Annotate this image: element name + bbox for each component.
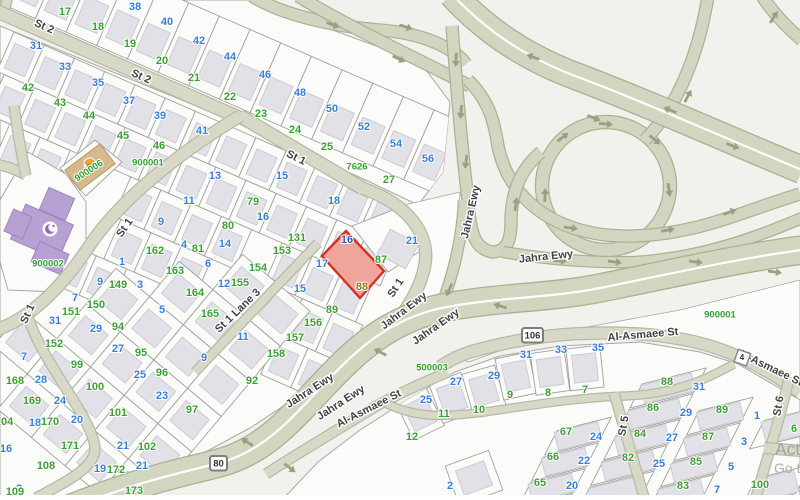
svg-text:38: 38 (129, 1, 141, 13)
svg-text:24: 24 (289, 124, 302, 136)
svg-text:168: 168 (6, 375, 24, 387)
svg-text:3: 3 (137, 279, 143, 291)
svg-text:6: 6 (205, 258, 211, 270)
svg-text:89: 89 (326, 304, 338, 316)
svg-text:46: 46 (259, 69, 271, 81)
svg-text:150: 150 (87, 299, 105, 311)
svg-text:11: 11 (237, 331, 249, 343)
svg-text:33: 33 (555, 344, 567, 356)
svg-text:7: 7 (72, 292, 78, 304)
svg-text:11: 11 (183, 195, 195, 207)
svg-text:Activate W: Activate W (775, 439, 800, 459)
svg-text:88: 88 (356, 281, 368, 293)
svg-text:5: 5 (728, 461, 734, 473)
svg-text:52: 52 (358, 121, 370, 133)
svg-text:100: 100 (86, 381, 104, 393)
svg-text:43: 43 (54, 97, 66, 109)
svg-text:108: 108 (37, 460, 55, 472)
svg-text:44: 44 (83, 110, 96, 122)
svg-text:7: 7 (582, 384, 588, 396)
svg-text:11: 11 (438, 408, 450, 420)
svg-text:22: 22 (224, 91, 236, 103)
svg-text:40: 40 (161, 16, 173, 28)
svg-text:31: 31 (520, 349, 532, 361)
svg-text:104: 104 (0, 416, 14, 428)
svg-text:1: 1 (754, 410, 760, 422)
svg-text:900002: 900002 (32, 259, 64, 270)
svg-text:153: 153 (273, 245, 291, 257)
svg-text:15: 15 (276, 170, 288, 182)
svg-text:41: 41 (196, 125, 208, 137)
svg-text:157: 157 (286, 332, 304, 344)
svg-text:88: 88 (661, 376, 673, 388)
svg-text:101: 101 (109, 407, 127, 419)
svg-text:20: 20 (71, 414, 83, 426)
svg-text:9: 9 (507, 389, 513, 401)
svg-text:23: 23 (156, 390, 168, 402)
svg-text:80: 80 (222, 220, 234, 232)
svg-text:31: 31 (693, 381, 705, 393)
svg-text:18: 18 (29, 417, 41, 429)
svg-text:12: 12 (218, 278, 230, 290)
svg-text:39: 39 (154, 110, 166, 122)
svg-text:109: 109 (6, 486, 24, 495)
svg-text:21: 21 (136, 460, 148, 472)
svg-text:154: 154 (249, 262, 268, 274)
svg-text:16: 16 (0, 443, 12, 455)
svg-text:106: 106 (525, 331, 541, 342)
svg-text:8: 8 (545, 387, 551, 399)
svg-text:14: 14 (219, 238, 232, 250)
svg-text:156: 156 (304, 317, 322, 329)
svg-text:7: 7 (21, 351, 27, 363)
svg-text:15: 15 (294, 283, 306, 295)
svg-text:85: 85 (690, 456, 702, 468)
svg-text:4: 4 (181, 239, 188, 251)
svg-text:44: 44 (224, 51, 237, 63)
svg-text:17: 17 (316, 258, 328, 270)
svg-text:163: 163 (166, 265, 184, 277)
svg-text:25: 25 (420, 394, 432, 406)
svg-text:25: 25 (134, 369, 146, 381)
svg-text:170: 170 (41, 416, 59, 428)
svg-text:50: 50 (326, 103, 338, 115)
svg-text:66: 66 (547, 451, 559, 463)
svg-text:56: 56 (422, 153, 434, 165)
svg-text:54: 54 (390, 138, 403, 150)
svg-text:27: 27 (383, 174, 395, 186)
svg-text:37: 37 (123, 95, 135, 107)
svg-text:27: 27 (112, 343, 124, 355)
svg-text:900001: 900001 (132, 158, 164, 169)
svg-text:20: 20 (566, 480, 578, 492)
svg-text:6: 6 (791, 423, 797, 435)
svg-text:89: 89 (716, 404, 728, 416)
svg-text:21: 21 (117, 440, 129, 452)
svg-text:Go to Setti: Go to Setti (774, 460, 800, 476)
svg-text:27: 27 (666, 432, 678, 444)
svg-text:22: 22 (578, 455, 590, 467)
svg-text:158: 158 (267, 348, 285, 360)
svg-text:95: 95 (135, 347, 147, 359)
svg-text:87: 87 (375, 254, 387, 266)
svg-text:7: 7 (714, 484, 720, 495)
svg-text:33: 33 (59, 61, 71, 73)
svg-text:3: 3 (741, 436, 747, 448)
svg-text:149: 149 (109, 279, 127, 291)
svg-text:42: 42 (193, 35, 205, 47)
svg-text:80: 80 (213, 459, 224, 470)
svg-text:35: 35 (592, 342, 604, 354)
svg-text:28: 28 (35, 374, 47, 386)
svg-text:162: 162 (146, 245, 164, 257)
svg-text:86: 86 (647, 402, 659, 414)
svg-text:97: 97 (186, 404, 198, 416)
svg-text:31: 31 (49, 315, 61, 327)
svg-text:65: 65 (534, 477, 546, 489)
svg-text:21: 21 (188, 72, 200, 84)
svg-text:82: 82 (622, 452, 634, 464)
svg-text:165: 165 (201, 308, 219, 320)
svg-text:9: 9 (97, 276, 103, 288)
svg-text:31: 31 (30, 40, 42, 52)
svg-text:21: 21 (406, 235, 418, 247)
svg-text:42: 42 (22, 82, 34, 94)
svg-text:27: 27 (450, 376, 462, 388)
svg-text:46: 46 (153, 140, 165, 152)
svg-text:29: 29 (488, 370, 500, 382)
svg-text:16: 16 (257, 211, 269, 223)
svg-text:100: 100 (751, 479, 769, 491)
svg-text:96: 96 (156, 367, 168, 379)
svg-text:102: 102 (138, 441, 156, 453)
svg-text:19: 19 (124, 38, 136, 50)
svg-text:18: 18 (92, 21, 104, 33)
svg-text:900001: 900001 (704, 310, 736, 321)
svg-text:164: 164 (186, 287, 205, 299)
svg-text:2: 2 (447, 480, 453, 492)
svg-text:20: 20 (156, 55, 168, 67)
svg-text:17: 17 (59, 6, 71, 18)
svg-text:35: 35 (92, 77, 104, 89)
svg-text:152: 152 (45, 338, 63, 350)
svg-text:25: 25 (321, 141, 333, 153)
svg-text:84: 84 (634, 428, 647, 440)
svg-text:29: 29 (680, 407, 692, 419)
svg-text:500003: 500003 (416, 363, 448, 374)
svg-text:87: 87 (702, 431, 714, 443)
svg-text:48: 48 (294, 87, 306, 99)
svg-text:9: 9 (158, 216, 164, 228)
svg-text:172: 172 (107, 464, 125, 476)
svg-text:9: 9 (201, 352, 207, 364)
svg-text:92: 92 (246, 375, 258, 387)
svg-text:5: 5 (159, 304, 165, 316)
svg-text:79: 79 (247, 196, 259, 208)
svg-text:45: 45 (117, 130, 129, 142)
svg-text:7626: 7626 (346, 162, 367, 173)
svg-text:67: 67 (560, 426, 572, 438)
svg-text:151: 151 (62, 306, 80, 318)
svg-text:29: 29 (90, 323, 102, 335)
svg-text:99: 99 (71, 359, 83, 371)
svg-text:19: 19 (94, 463, 106, 475)
svg-text:12: 12 (406, 431, 418, 443)
svg-text:94: 94 (112, 321, 125, 333)
svg-text:1: 1 (119, 256, 125, 268)
svg-text:173: 173 (125, 485, 143, 495)
svg-text:24: 24 (54, 395, 67, 407)
svg-text:131: 131 (288, 232, 306, 244)
svg-text:24: 24 (590, 431, 603, 443)
svg-text:155: 155 (231, 277, 249, 289)
svg-text:4: 4 (740, 353, 745, 362)
svg-text:83: 83 (677, 480, 689, 492)
svg-text:18: 18 (328, 195, 340, 207)
svg-text:81: 81 (192, 243, 204, 255)
svg-text:10: 10 (473, 404, 485, 416)
svg-text:25: 25 (653, 458, 665, 470)
svg-text:13: 13 (209, 170, 221, 182)
svg-text:16: 16 (341, 234, 353, 246)
svg-text:171: 171 (61, 440, 79, 452)
svg-text:169: 169 (23, 395, 41, 407)
svg-text:23: 23 (255, 108, 267, 120)
